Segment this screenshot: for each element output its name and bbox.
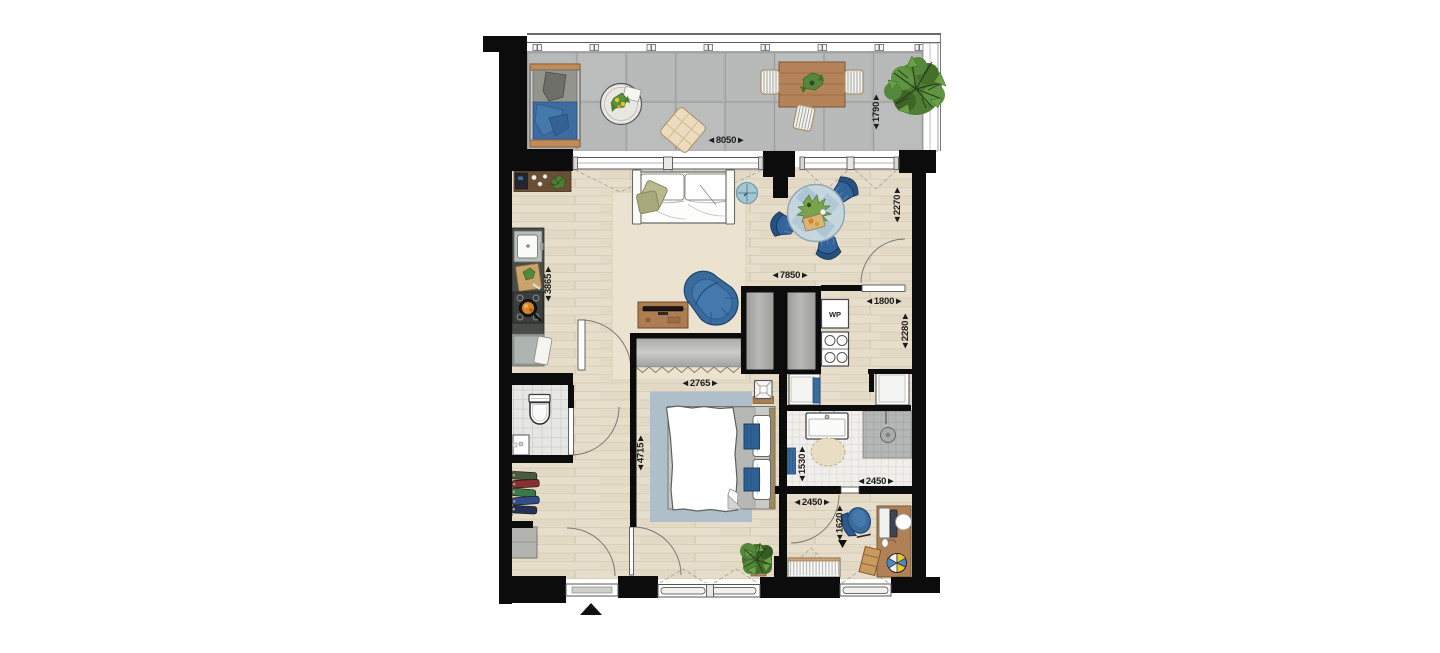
svg-text:◄2270►: ◄2270► — [892, 186, 903, 225]
svg-text:◄1620►: ◄1620► — [835, 504, 846, 543]
svg-text:◄1790►: ◄1790► — [871, 93, 882, 132]
svg-text:◄2450►: ◄2450► — [857, 476, 896, 487]
svg-text:◄7850►: ◄7850► — [771, 270, 810, 281]
svg-text:◄2450►: ◄2450► — [793, 497, 832, 508]
svg-text:◄2765►: ◄2765► — [681, 378, 720, 389]
svg-text:◄3865►: ◄3865► — [543, 265, 554, 304]
svg-text:◄8050►: ◄8050► — [707, 135, 746, 146]
svg-text:◄1800►: ◄1800► — [865, 296, 904, 307]
svg-text:◄1530►: ◄1530► — [797, 445, 808, 484]
svg-text:◄2280►: ◄2280► — [900, 312, 911, 351]
svg-text:WP: WP — [829, 310, 841, 319]
svg-text:◄4715►: ◄4715► — [636, 434, 647, 473]
